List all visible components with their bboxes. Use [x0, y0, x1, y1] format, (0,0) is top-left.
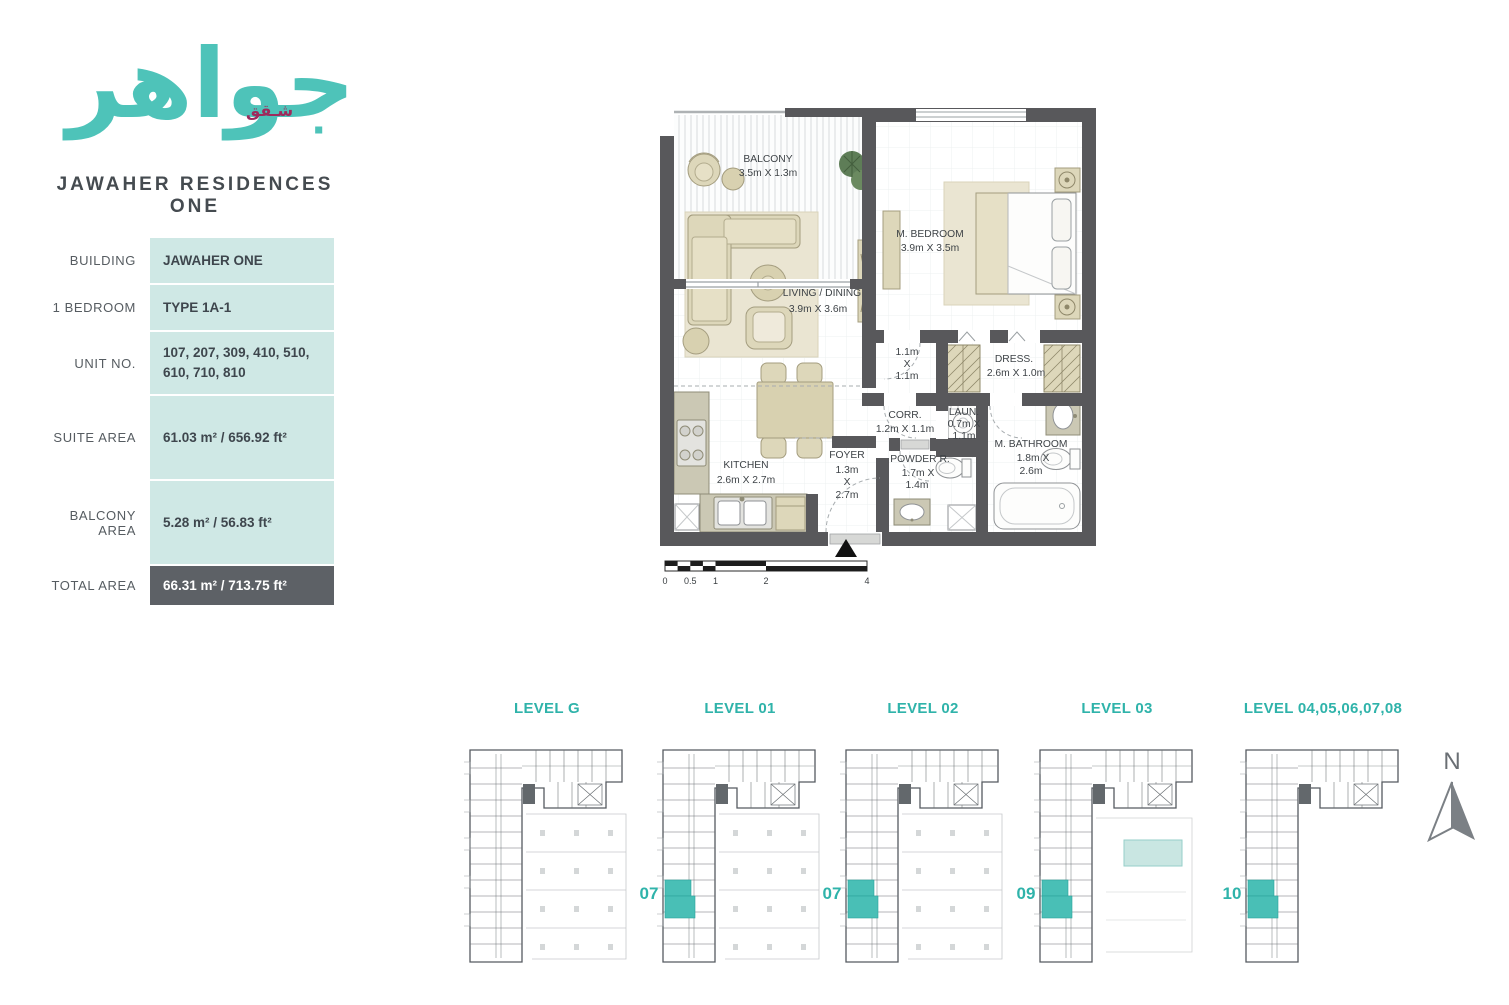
row-value: TYPE 1A-1	[150, 285, 334, 330]
level-mini-plan	[836, 734, 1011, 969]
room-dims-balcony: 3.5m X 1.3m	[739, 168, 797, 179]
row-label: 1 BEDROOM	[30, 285, 136, 330]
room-dims-foyer-3: 2.7m	[836, 490, 859, 501]
brand-logo-arabic: جواهر	[75, 22, 355, 147]
level-mini-plan	[653, 734, 828, 969]
room-label-kitchen: KITCHEN	[723, 460, 768, 471]
table-row: BALCONY AREA 5.28 m² / 56.83 ft²	[30, 481, 334, 564]
room-label-foyer: FOYER	[829, 450, 864, 461]
row-value: 5.28 m² / 56.83 ft²	[150, 481, 334, 564]
unit-floor-plan: BALCONY 3.5m X 1.3m M. BEDROOM 3.9m X 3.…	[658, 106, 1098, 586]
brochure-page: جواهر شـقق JAWAHER RESIDENCES ONE BUILDI…	[0, 0, 1509, 1005]
level-title: LEVEL G	[452, 700, 642, 720]
brand-logo-arabic-sub: شـقق	[246, 101, 293, 120]
room-label-dress: DRESS.	[995, 354, 1033, 365]
room-dims-living: 3.9m X 3.6m	[789, 304, 847, 315]
row-label: TOTAL AREA	[30, 566, 136, 605]
row-label: UNIT NO.	[30, 332, 136, 394]
level-title: LEVEL 01	[645, 700, 835, 720]
room-label-laun: LAUN.	[949, 407, 979, 418]
unit-number-badge: 07	[629, 884, 669, 904]
level-title: LEVEL 02	[828, 700, 1018, 720]
scale-bar: 0 0.5 1 2 4	[662, 561, 869, 586]
row-label: BALCONY AREA	[30, 481, 136, 564]
room-label-living: LIVING / DINING	[783, 288, 861, 299]
scale-tick-2: 2	[763, 576, 768, 586]
room-dims-kitchen: 2.6m X 2.7m	[717, 475, 775, 486]
room-dims-foyer-1: 1.3m	[836, 465, 859, 476]
unit-info-table: BUILDING JAWAHER ONE 1 BEDROOM TYPE 1A-1…	[30, 238, 334, 607]
closet-dims-1: 1.1m	[896, 347, 919, 358]
closet-dims-2: X	[904, 359, 911, 370]
scale-tick-0: 0	[662, 576, 667, 586]
level-title: LEVEL 04,05,06,07,08	[1228, 700, 1418, 720]
level-title: LEVEL 03	[1022, 700, 1212, 720]
table-row: SUITE AREA 61.03 m² / 656.92 ft²	[30, 396, 334, 479]
level-block-01: LEVEL 01 07	[645, 700, 835, 969]
scale-tick-4: 4	[864, 576, 869, 586]
level-block-02: LEVEL 02 07	[828, 700, 1018, 969]
brand-name: JAWAHER RESIDENCES ONE	[28, 174, 362, 218]
row-value: 61.03 m² / 656.92 ft²	[150, 396, 334, 479]
row-value: JAWAHER ONE	[150, 238, 334, 283]
room-dims-laun-2: 1.1m	[953, 431, 976, 442]
level-mini-plan	[1030, 734, 1205, 969]
unit-number-badge: 07	[812, 884, 852, 904]
row-label: BUILDING	[30, 238, 136, 283]
room-dims-powder-1: 1.7m X	[902, 468, 935, 479]
level-mini-plan	[1236, 734, 1411, 969]
table-row: UNIT NO. 107, 207, 309, 410, 510, 610, 7…	[30, 332, 334, 394]
room-label-corr: CORR.	[888, 410, 921, 421]
scale-tick-05: 0.5	[684, 576, 697, 586]
room-label-balcony: BALCONY	[743, 154, 792, 165]
level-block-g: LEVEL G	[452, 700, 642, 969]
room-dims-bedroom: 3.9m X 3.5m	[901, 243, 959, 254]
room-label-bathroom: M. BATHROOM	[994, 439, 1067, 450]
room-dims-foyer-2: X	[844, 477, 851, 488]
north-label: N	[1407, 748, 1497, 776]
level-mini-plan	[460, 734, 635, 969]
room-dims-corr: 1.2m X 1.1m	[876, 424, 934, 435]
room-dims-laun-1: 0.7m X	[948, 419, 981, 430]
row-label: SUITE AREA	[30, 396, 136, 479]
room-dims-dress: 2.6m X 1.0m	[987, 368, 1045, 379]
room-label-powder: POWDER R.	[890, 454, 950, 465]
room-dims-bathroom-1: 1.8m X	[1017, 453, 1050, 464]
table-row-total: TOTAL AREA 66.31 m² / 713.75 ft²	[30, 566, 334, 605]
unit-number-badge: 10	[1212, 884, 1252, 904]
closet-dims-3: 1.1m	[896, 371, 919, 382]
table-row: 1 BEDROOM TYPE 1A-1	[30, 285, 334, 330]
row-value: 66.31 m² / 713.75 ft²	[150, 566, 334, 605]
row-value: 107, 207, 309, 410, 510, 610, 710, 810	[150, 332, 334, 394]
north-arrow-icon	[1407, 776, 1497, 846]
level-block-04-08: LEVEL 04,05,06,07,08 10	[1228, 700, 1418, 969]
room-dims-bathroom-2: 2.6m	[1020, 466, 1043, 477]
scale-tick-1: 1	[713, 576, 718, 586]
level-block-03: LEVEL 03 09	[1022, 700, 1212, 969]
north-compass: N	[1407, 748, 1497, 851]
unit-number-badge: 09	[1006, 884, 1046, 904]
room-dims-powder-2: 1.4m	[906, 480, 929, 491]
table-row: BUILDING JAWAHER ONE	[30, 238, 334, 283]
room-label-bedroom: M. BEDROOM	[896, 229, 964, 240]
